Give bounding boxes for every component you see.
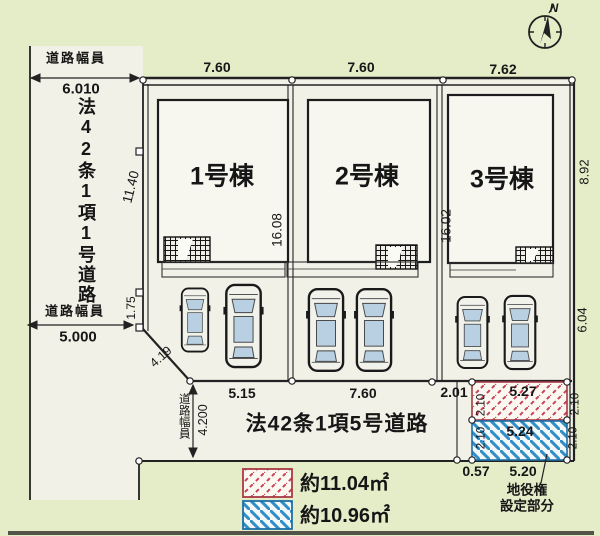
- site-plan: N 道路幅員 6.010 法42条1項1号道路 道路幅員 5.000 11.40…: [0, 0, 600, 536]
- dim-parking-front-1: 5.15: [228, 386, 255, 400]
- compass-north-label: N: [550, 2, 559, 14]
- dim-easement-blue-left: 2.10: [476, 427, 488, 449]
- car-icon: [502, 296, 538, 369]
- dim-parking-front-2: 7.60: [349, 386, 376, 400]
- dim-easement-red-right: 2.10: [570, 393, 582, 415]
- dim-easement-blue-length: 5.24: [506, 424, 533, 438]
- dim-frontage-2: 7.60: [347, 60, 374, 74]
- dim-east-upper: 8.92: [578, 159, 591, 184]
- car-icon: [354, 289, 394, 371]
- left-road-name: 法42条1項1号道路: [77, 97, 95, 305]
- building-1-label: 1号棟: [190, 165, 254, 190]
- scan-edge: [8, 531, 594, 535]
- dim-frontage-3: 7.62: [489, 62, 516, 76]
- bottom-road-width-value: 4.200: [197, 404, 210, 435]
- legend-red-label: 約11.04㎡: [300, 474, 389, 494]
- dim-depth-1: 16.08: [270, 213, 284, 247]
- building-3-label: 3号棟: [470, 168, 534, 193]
- car-icon: [180, 288, 211, 351]
- dim-easement-bottom-left: 0.57: [462, 464, 489, 478]
- car-icon: [223, 285, 263, 367]
- car-icon: [455, 297, 490, 368]
- dim-frontage-1: 7.60: [203, 60, 230, 74]
- left-road-width-value-bottom: 5.000: [59, 330, 97, 345]
- parked-cars: [180, 285, 538, 371]
- dim-easement-bottom-right: 5.20: [509, 464, 536, 478]
- easement-note-line2: 設定部分: [500, 499, 554, 513]
- dim-easement-blue-right: 2.10: [568, 427, 580, 449]
- left-road-width-value-top: 6.010: [62, 82, 100, 97]
- dim-easement-red-left: 2.10: [476, 394, 488, 416]
- dim-depth-2: 16.02: [439, 209, 453, 243]
- legend: [243, 469, 292, 529]
- legend-blue-swatch: [243, 501, 292, 529]
- left-road-width-caption-bottom: 道路幅員: [45, 305, 105, 318]
- dim-parking-front-3: 2.01: [440, 385, 467, 399]
- dim-east-lower: 6.04: [576, 307, 589, 332]
- legend-red-swatch: [243, 469, 292, 497]
- bottom-road-width-caption: 道路幅員: [177, 393, 189, 439]
- left-road-width-caption-top: 道路幅員: [46, 52, 106, 65]
- building-2-label: 2号棟: [335, 165, 399, 190]
- bottom-road-name: 法42条1項5号道路: [246, 414, 429, 435]
- dim-west-step: 1.75: [125, 296, 137, 319]
- car-icon: [306, 289, 346, 371]
- easement-note-line1: 地役権: [507, 483, 548, 497]
- dim-easement-red-length: 5.27: [509, 384, 536, 398]
- legend-blue-label: 約10.96㎡: [300, 506, 390, 526]
